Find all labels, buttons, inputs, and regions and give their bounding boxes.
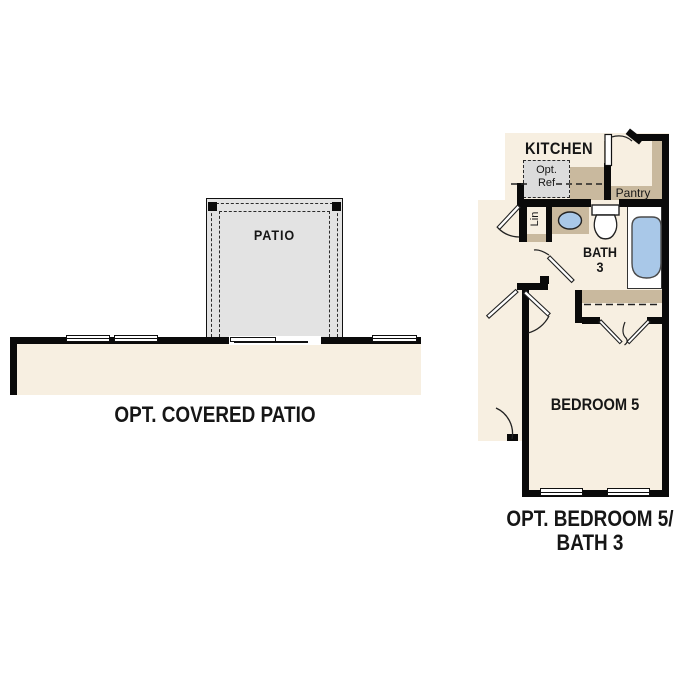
floorplan-canvas: PATIO OPT. COVERED PATIO xyxy=(0,0,687,687)
sink-fixture xyxy=(559,212,582,229)
bathtub-fixture xyxy=(632,217,661,278)
bath-door xyxy=(534,250,574,283)
bedroom-door xyxy=(524,291,551,333)
hall-door xyxy=(497,205,520,237)
cutoff-door-leaf xyxy=(487,290,518,319)
closet-bifold-doors xyxy=(599,320,650,345)
toilet-fixture xyxy=(592,205,619,239)
pantry-door xyxy=(605,135,632,166)
left-room-door-swing xyxy=(496,408,513,439)
fixtures-and-doors-overlay xyxy=(0,0,687,687)
